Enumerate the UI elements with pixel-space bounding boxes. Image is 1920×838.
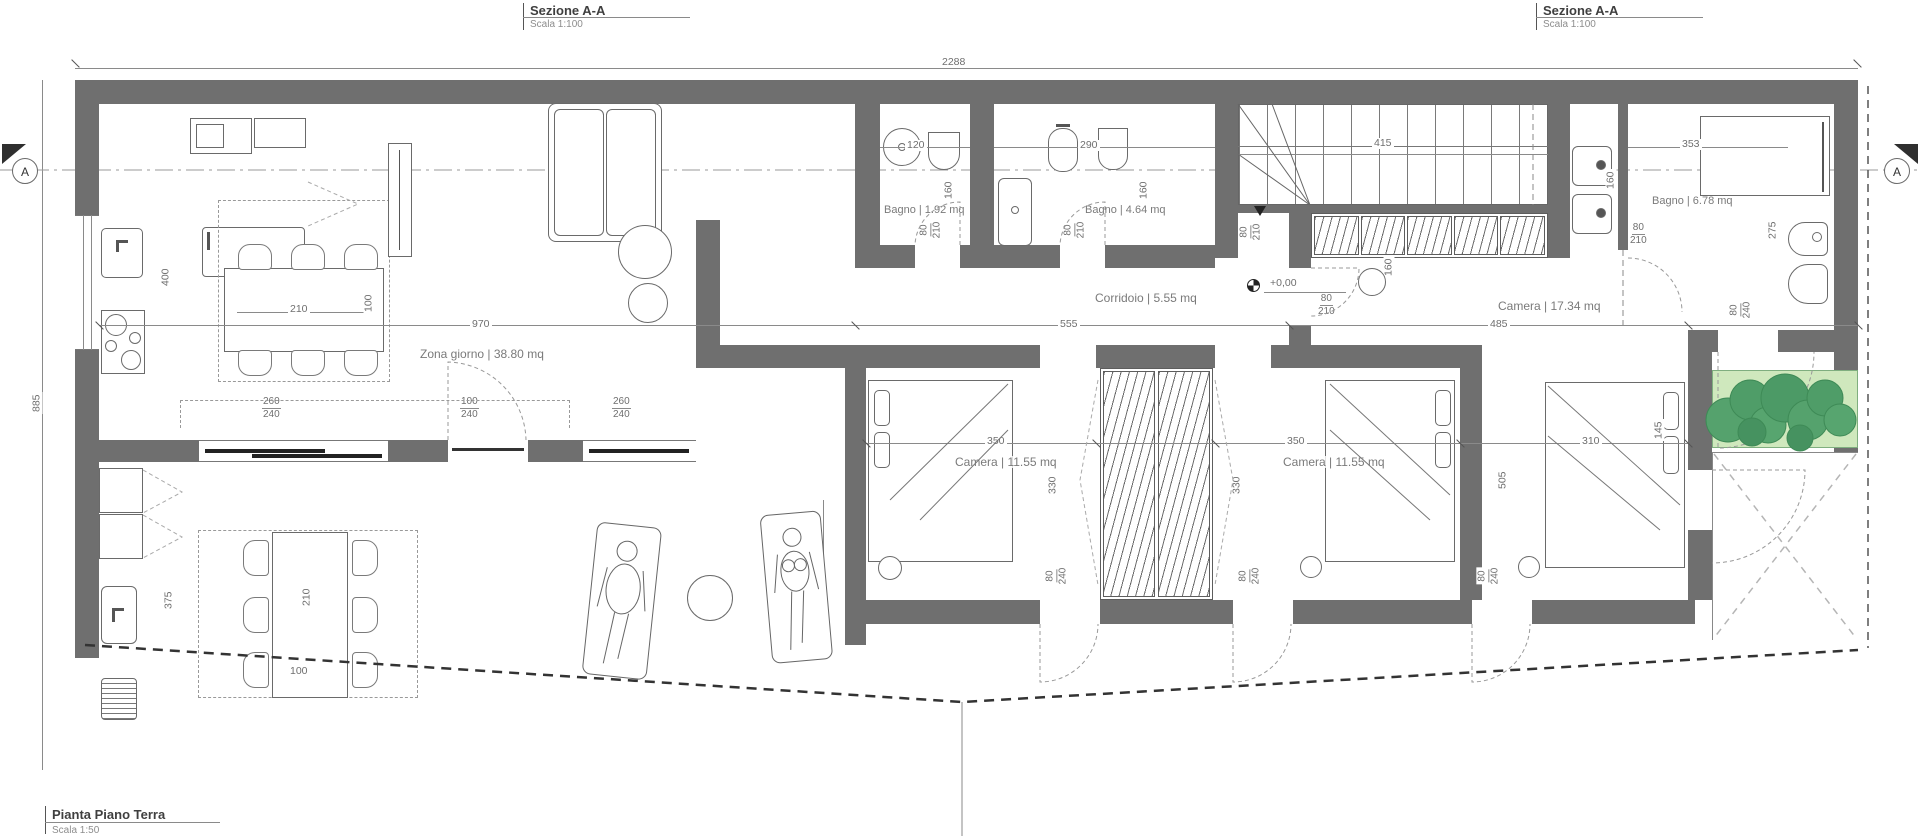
bed-pillow — [1435, 390, 1451, 426]
pergola-outline — [180, 400, 570, 428]
window-left-mullion — [83, 215, 84, 350]
plan-title-tick — [45, 806, 46, 834]
section-marker-left-label: A — [21, 165, 29, 179]
dim-total-width: 2288 — [940, 57, 967, 68]
wardrobe-cell — [1361, 216, 1406, 255]
room-label-living: Zona giorno | 38.80 mq — [420, 348, 544, 360]
door-dim-bedroom1: 80240 — [1044, 568, 1068, 585]
coffee-table — [628, 283, 668, 323]
door-dim-stairs: 80210 — [1238, 224, 1262, 241]
door-dim-w: 80 — [1238, 225, 1251, 238]
dim-table-width: 100 — [364, 292, 375, 314]
bidet-bath2 — [1048, 128, 1078, 172]
tv-cabinet — [388, 143, 412, 257]
door-bath1-opening — [915, 245, 960, 268]
room-label-bedroom1: Camera | 11.55 mq — [955, 456, 1057, 468]
section-left-title: Sezione A-A — [530, 4, 605, 17]
dim-camera3-width: 485 — [1488, 319, 1510, 330]
dining-chair — [344, 244, 378, 270]
door-dim-h: 240 — [1057, 568, 1069, 585]
door-bedroom2-opening — [1233, 600, 1293, 624]
room-label-bath2: Bagno | 4.64 mq — [1085, 205, 1166, 216]
dim-niche-b: 160 — [1139, 179, 1150, 201]
sofa-cushion — [554, 109, 604, 236]
kitchen-sink — [101, 228, 143, 278]
dim-tick — [1853, 59, 1861, 67]
wall-bottom-a — [845, 600, 1040, 624]
wardrobe-cell — [1103, 371, 1155, 597]
kitchen-unit-handle — [207, 232, 210, 250]
dim-bath1-width: 120 — [905, 140, 927, 151]
outdoor-chair — [243, 540, 269, 576]
dim-line-bath3 — [1628, 147, 1788, 148]
wall-camera3-east-b — [1688, 530, 1712, 600]
wardrobe-cell — [1314, 216, 1359, 255]
cooktop-burner — [105, 340, 117, 352]
dim-outdoor-table-width: 100 — [288, 666, 310, 677]
dim-bath3-depth: 275 — [1768, 219, 1779, 241]
door-dim-w: 80 — [1044, 569, 1057, 582]
dim-bed1-width: 350 — [985, 436, 1007, 447]
window-left-wall — [75, 215, 99, 350]
door-dim-bath2: 80210 — [1062, 222, 1086, 239]
door-dim-w: 80 — [1632, 222, 1645, 235]
vanity-divider — [1822, 122, 1824, 192]
dim-line-terrace — [823, 500, 824, 640]
dining-chair — [344, 350, 378, 376]
dim-line-left — [42, 80, 43, 770]
door-dim-w: 80 — [1237, 569, 1250, 582]
opening-dim-window-b: 260240 — [612, 396, 631, 420]
dim-niche-c: 160 — [1606, 169, 1617, 191]
door-dim-w: 80 — [1062, 223, 1075, 236]
kitchen-wall-cabinet — [254, 118, 306, 148]
door-dim-h: 240 — [1741, 302, 1753, 319]
door-dim-h: 210 — [931, 222, 943, 239]
wall-bath2-stairs — [1215, 104, 1238, 258]
dim-corridor-length: 555 — [1058, 319, 1080, 330]
dim-niche-d: 160 — [1384, 256, 1395, 278]
door-dim-corridor: 80210 — [1318, 293, 1335, 317]
dim-bed3-side: 145 — [1654, 419, 1665, 441]
level-marker-icon — [1247, 279, 1260, 292]
bedside-stool — [1518, 556, 1540, 578]
wall-corridor-east-a — [1289, 213, 1311, 268]
dining-chair — [238, 244, 272, 270]
sofa-cushion — [606, 109, 656, 236]
planter-bed — [1712, 370, 1858, 448]
wc-bath2 — [1098, 128, 1128, 170]
outdoor-chair — [243, 597, 269, 633]
dim-line-bath2 — [994, 147, 1215, 148]
wc-bath3 — [1788, 264, 1828, 304]
door-dim-w: 80 — [918, 223, 931, 236]
door-bath2-opening — [1060, 245, 1105, 268]
wall-camera3-east-a — [1688, 352, 1712, 470]
outdoor-cabinet — [99, 514, 143, 559]
wall-top — [75, 80, 1858, 104]
dim-living-width: 970 — [470, 319, 492, 330]
outdoor-side-table — [687, 575, 733, 621]
dim-bed2-width: 350 — [1285, 436, 1307, 447]
door-bedroom1-opening — [1040, 600, 1100, 624]
door-dim-h: 240 — [1250, 568, 1262, 585]
dim-tick — [71, 59, 79, 67]
sun-lounger-male — [582, 522, 662, 680]
wall-living-south-b — [388, 440, 448, 462]
dining-chair — [238, 350, 272, 376]
wall-bath3-bottom-b — [1778, 330, 1834, 352]
dining-chair — [291, 350, 325, 376]
room-label-corridor: Corridoio | 5.55 mq — [1095, 292, 1197, 304]
bed-pillow — [1663, 436, 1679, 474]
bedside-stool — [878, 556, 902, 580]
outdoor-chair — [243, 652, 269, 688]
understair-wardrobe — [1311, 213, 1548, 258]
stair-direction-arrow-icon — [1254, 206, 1266, 216]
plan-title-underline — [45, 822, 220, 823]
wall-bath-south-a — [855, 245, 915, 268]
bed-pillow — [874, 390, 890, 426]
bed-pillow — [1435, 432, 1451, 468]
dim-bed3-depth: 505 — [1498, 469, 1509, 491]
kitchen-faucet-icon — [116, 240, 119, 252]
door-bath3-courtyard-opening — [1718, 330, 1778, 352]
bidet — [1788, 222, 1828, 256]
door-dim-w: 80 — [1320, 293, 1333, 306]
section-marker-right-label: A — [1893, 165, 1901, 179]
faucet-icon — [1056, 124, 1070, 127]
wall-stairs-east — [1548, 104, 1570, 258]
door-dim-bedroom2: 80240 — [1237, 568, 1261, 585]
dim-stair-run: 415 — [1372, 138, 1394, 149]
outdoor-chair — [352, 540, 378, 576]
dim-line-center — [99, 325, 1858, 326]
wall-living-south-a — [99, 440, 199, 462]
door-leaf — [452, 448, 524, 451]
wall-bottom-b — [1100, 600, 1233, 624]
outdoor-table — [272, 532, 348, 698]
plan-title: Pianta Piano Terra — [52, 808, 165, 821]
cooktop-burner — [129, 332, 141, 344]
door-dim-bedroom3: 80240 — [1476, 568, 1500, 585]
section-left-scale: Scala 1:100 — [530, 20, 583, 30]
door-living-south — [448, 440, 528, 462]
stair-mid-line — [1238, 154, 1548, 155]
dim-outdoor-side: 375 — [164, 589, 175, 611]
sliding-door-leaf — [589, 449, 689, 453]
wall-bottom-c — [1293, 600, 1472, 624]
courtyard — [1712, 452, 1858, 640]
wall-stairs-bottom — [1238, 205, 1548, 213]
bidet-faucet — [1812, 232, 1822, 242]
wall-living-bath — [855, 104, 880, 268]
dim-bath3-width: 353 — [1680, 139, 1702, 150]
outdoor-chair — [352, 652, 378, 688]
opening-dim-h: 240 — [613, 409, 630, 421]
room-label-bedroom2: Camera | 11.55 mq — [1283, 456, 1385, 468]
plan-scale: Scala 1:50 — [52, 826, 99, 836]
dim-total-depth: 885 — [32, 392, 43, 414]
door-bedroom3-opening — [1472, 600, 1532, 624]
appliance-knob — [1596, 160, 1606, 170]
bedside-stool — [1300, 556, 1322, 578]
coffee-table — [618, 225, 672, 279]
dim-line-top — [75, 68, 1858, 69]
sun-lounger-female — [760, 511, 833, 664]
room-label-bath1: Bagno | 1.92 mq — [884, 205, 965, 216]
dim-table-length: 210 — [288, 304, 310, 315]
outdoor-chair — [352, 597, 378, 633]
wardrobe-cell — [1454, 216, 1499, 255]
door-dim-w: 80 — [1476, 569, 1489, 582]
wall-bedstrip-north-b — [1096, 345, 1215, 368]
wall-bath3-bottom-a — [1688, 330, 1718, 352]
sliding-door-leaf — [205, 449, 325, 453]
dim-bed2-depth: 330 — [1232, 474, 1243, 496]
door-dim-h: 210 — [1630, 235, 1647, 247]
dim-outdoor-table-length: 210 — [302, 586, 313, 608]
floor-plan-canvas: Sezione A-A Scala 1:100 Sezione A-A Scal… — [0, 0, 1920, 838]
wall-bath-south-b — [960, 245, 1060, 268]
door-dim-h: 210 — [1251, 224, 1263, 241]
wall-bath-south-c — [1105, 245, 1215, 268]
sliding-door-leaf — [252, 454, 382, 458]
wall-bed2-east — [1460, 368, 1482, 600]
wall-bath1-bath2 — [970, 104, 994, 250]
door-dim-bath3: 80210 — [1630, 222, 1647, 246]
dining-chair — [291, 244, 325, 270]
appliance-knob — [1596, 208, 1606, 218]
section-right-scale: Scala 1:100 — [1543, 20, 1596, 30]
wardrobe-cell — [1407, 216, 1452, 255]
door-dim-bath1: 80210 — [918, 222, 942, 239]
dim-terrace-depth: 220 — [812, 544, 823, 566]
level-marker-value: +0,00 — [1268, 278, 1299, 289]
barbecue-grill — [101, 678, 137, 720]
dim-bed3-width: 310 — [1580, 436, 1602, 447]
section-right-title: Sezione A-A — [1543, 4, 1618, 17]
door-dim-courtyard: 80240 — [1728, 302, 1752, 319]
shower-drain — [1011, 206, 1019, 214]
wall-left — [75, 104, 99, 658]
wall-bedstrip-north-c — [1271, 345, 1482, 368]
room-label-bedroom-large: Camera | 17.34 mq — [1498, 300, 1601, 312]
appliance-dryer — [1572, 194, 1612, 234]
pendant-lamp — [1358, 268, 1386, 296]
wc-bath1 — [928, 132, 960, 170]
door-dim-w: 80 — [1728, 303, 1741, 316]
section-marker-left: A — [12, 158, 38, 184]
dim-niche-a: 160 — [944, 179, 955, 201]
door-dim-h: 240 — [1489, 568, 1501, 585]
wall-living-south-c — [528, 440, 583, 462]
wardrobe-cell — [1500, 216, 1545, 255]
outdoor-sink — [101, 586, 137, 644]
door-dim-h: 210 — [1075, 222, 1087, 239]
tv-cabinet-line — [399, 150, 400, 250]
cooktop-burner — [121, 350, 141, 370]
outdoor-cabinet — [99, 468, 143, 513]
opening-dim-w: 260 — [612, 396, 631, 409]
bedroom-wardrobe-block — [1100, 368, 1213, 600]
dim-bed1-depth: 330 — [1048, 474, 1059, 496]
dim-bath2-width: 290 — [1078, 140, 1100, 151]
wardrobe-cell — [1158, 371, 1210, 597]
bed-pillow — [874, 432, 890, 468]
dim-kitchen-depth: 400 — [161, 266, 172, 288]
wall-bath3-west — [1618, 104, 1628, 250]
wall-bottom-d — [1532, 600, 1695, 624]
door-dim-h: 210 — [1318, 306, 1335, 318]
section-marker-right: A — [1884, 158, 1910, 184]
wall-bedstrip-north-a — [696, 345, 1040, 368]
bed-pillow — [1663, 392, 1679, 430]
window-left-mullion — [91, 215, 92, 350]
room-label-bath3: Bagno | 6.78 mq — [1652, 196, 1733, 207]
vanity-counter — [1700, 116, 1830, 196]
kitchen-wall-cabinet-inner — [196, 124, 224, 148]
outdoor-faucet-icon — [112, 608, 124, 611]
